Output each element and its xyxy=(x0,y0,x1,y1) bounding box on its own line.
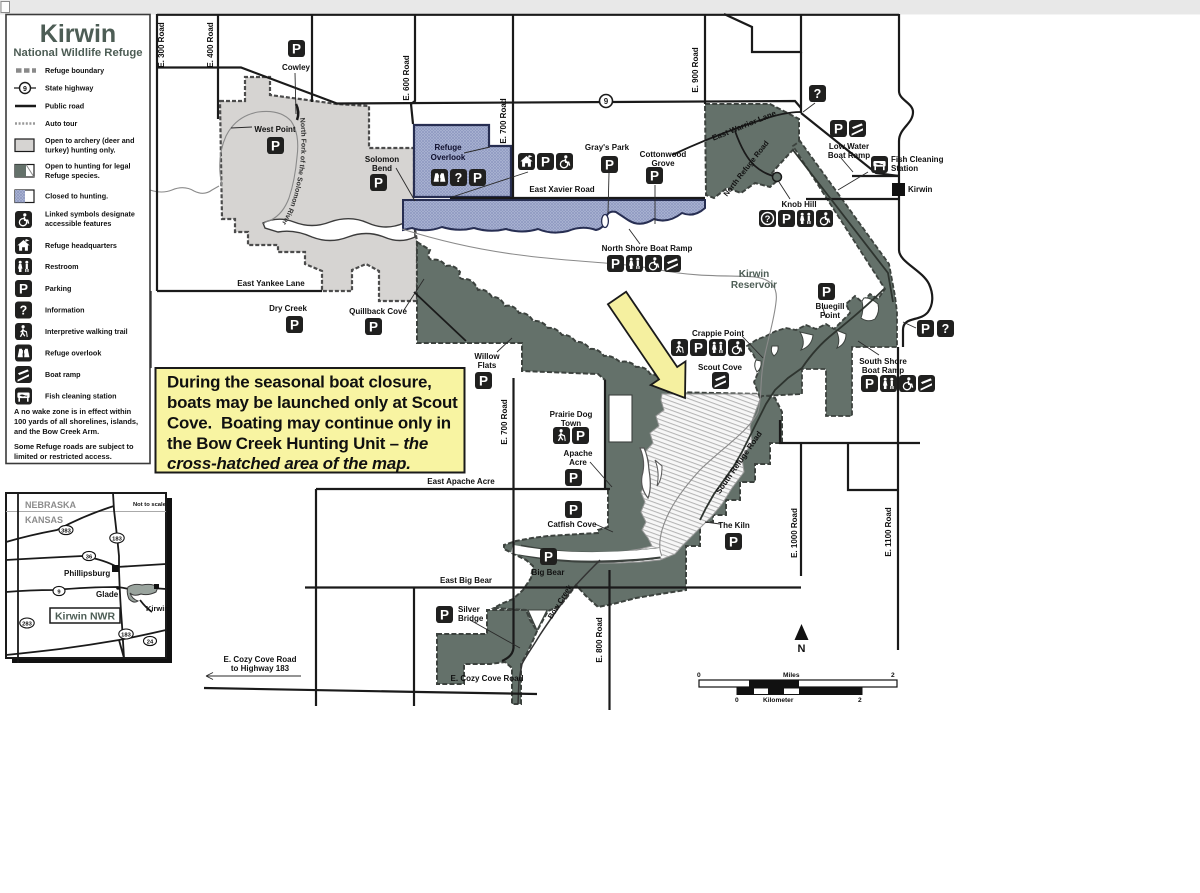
svg-text:Cowley: Cowley xyxy=(282,63,311,72)
svg-text:Some Refuge roads are subject: Some Refuge roads are subject to xyxy=(14,442,134,451)
svg-text:Miles: Miles xyxy=(783,672,800,679)
svg-text:9: 9 xyxy=(604,97,609,106)
svg-text:Public road: Public road xyxy=(45,102,84,111)
svg-text:2: 2 xyxy=(891,672,895,679)
svg-text:Apache: Apache xyxy=(564,449,593,458)
svg-text:E. 700 Road: E. 700 Road xyxy=(500,399,509,444)
svg-text:Phillipsburg: Phillipsburg xyxy=(64,569,110,578)
svg-text:KANSAS: KANSAS xyxy=(25,515,63,525)
svg-text:A no wake zone is in effect wi: A no wake zone is in effect within xyxy=(14,407,132,416)
svg-text:Willow: Willow xyxy=(474,352,500,361)
svg-text:East Yankee Lane: East Yankee Lane xyxy=(237,279,305,288)
svg-text:E. Cozy Cove Road: E. Cozy Cove Road xyxy=(224,655,297,664)
svg-text:Bend: Bend xyxy=(372,164,392,173)
svg-text:Gray's Park: Gray's Park xyxy=(585,143,630,152)
svg-text:East Apache Acre: East Apache Acre xyxy=(427,477,495,486)
svg-text:Prairie Dog: Prairie Dog xyxy=(550,410,593,419)
svg-text:Boat ramp: Boat ramp xyxy=(45,370,81,379)
svg-text:Glade: Glade xyxy=(96,590,119,599)
svg-text:boats may be launched only at: boats may be launched only at Scout xyxy=(167,393,458,412)
svg-text:24: 24 xyxy=(147,639,154,645)
svg-text:West Point: West Point xyxy=(254,125,296,134)
svg-text:E. 1000 Road: E. 1000 Road xyxy=(790,508,799,558)
svg-text:E. 900 Road: E. 900 Road xyxy=(691,47,700,92)
svg-text:Overlook: Overlook xyxy=(431,153,466,162)
svg-text:100 yards of all shorelines, i: 100 yards of all shorelines, islands, xyxy=(14,417,138,426)
svg-text:Acre: Acre xyxy=(569,458,587,467)
svg-text:Refuge: Refuge xyxy=(434,143,462,152)
svg-text:Low Water: Low Water xyxy=(829,142,869,151)
svg-text:Open to hunting for legal: Open to hunting for legal xyxy=(45,162,130,171)
svg-text:State highway: State highway xyxy=(45,84,93,93)
svg-text:283: 283 xyxy=(22,621,32,627)
svg-text:Not to scale: Not to scale xyxy=(133,502,167,508)
svg-text:Grove: Grove xyxy=(651,159,675,168)
svg-text:0: 0 xyxy=(697,672,701,679)
svg-text:Fish Cleaning: Fish Cleaning xyxy=(891,155,944,164)
svg-text:Refuge species.: Refuge species. xyxy=(45,171,100,180)
svg-text:Kirwin: Kirwin xyxy=(908,185,933,194)
svg-text:36: 36 xyxy=(86,554,93,560)
svg-text:E. 1100 Road: E. 1100 Road xyxy=(884,507,893,556)
svg-text:Refuge boundary: Refuge boundary xyxy=(45,66,104,75)
svg-text:E. 700 Road: E. 700 Road xyxy=(499,98,508,143)
svg-text:to Highway 183: to Highway 183 xyxy=(231,664,290,673)
svg-text:Quillback Cove: Quillback Cove xyxy=(349,307,407,316)
svg-text:E. 600 Road: E. 600 Road xyxy=(402,55,411,100)
svg-text:183: 183 xyxy=(112,536,122,542)
svg-text:Cove. Boating may continue on: Cove. Boating may continue only in xyxy=(167,414,451,433)
svg-text:383: 383 xyxy=(61,528,71,534)
svg-text:turkey) hunting only.: turkey) hunting only. xyxy=(45,146,116,155)
svg-text:Kirwin: Kirwin xyxy=(40,20,116,48)
svg-text:Scout Cove: Scout Cove xyxy=(698,363,743,372)
svg-text:Station: Station xyxy=(891,164,918,173)
svg-text:183: 183 xyxy=(121,632,131,638)
svg-text:Kilometer: Kilometer xyxy=(763,697,794,704)
svg-text:Catfish Cove: Catfish Cove xyxy=(548,520,597,529)
svg-text:NEBRASKA: NEBRASKA xyxy=(25,500,77,510)
svg-text:Parking: Parking xyxy=(45,284,71,293)
svg-text:Boat Ramp: Boat Ramp xyxy=(862,366,904,375)
svg-text:Cottonwood: Cottonwood xyxy=(640,150,687,159)
svg-text:Bridge: Bridge xyxy=(458,614,484,623)
svg-text:Crappie Point: Crappie Point xyxy=(692,329,744,338)
svg-text:the Bow Creek Hunting Unit – t: the Bow Creek Hunting Unit – the xyxy=(167,434,428,453)
svg-text:N: N xyxy=(798,643,806,655)
svg-text:Town: Town xyxy=(561,419,581,428)
svg-text:2: 2 xyxy=(858,697,862,704)
svg-text:and the Bow Creek Arm.: and the Bow Creek Arm. xyxy=(14,427,99,436)
svg-text:The Kiln: The Kiln xyxy=(718,521,750,530)
svg-text:Kirwin: Kirwin xyxy=(146,604,169,613)
svg-text:limited or restricted access.: limited or restricted access. xyxy=(14,452,112,461)
svg-text:Solomon: Solomon xyxy=(365,155,399,164)
svg-text:Information: Information xyxy=(45,306,85,315)
svg-text:Restroom: Restroom xyxy=(45,262,79,271)
svg-text:East Xavier Road: East Xavier Road xyxy=(529,185,594,194)
svg-text:Big Bear: Big Bear xyxy=(532,568,565,577)
svg-text:North Shore Boat Ramp: North Shore Boat Ramp xyxy=(602,244,693,253)
svg-text:South Shore: South Shore xyxy=(859,357,907,366)
svg-text:Refuge overlook: Refuge overlook xyxy=(45,349,101,358)
svg-text:National Wildlife Refuge: National Wildlife Refuge xyxy=(13,47,142,59)
svg-text:E. Cozy Cove Road: E. Cozy Cove Road xyxy=(451,674,524,683)
svg-text:Flats: Flats xyxy=(478,361,497,370)
svg-text:Closed to hunting.: Closed to hunting. xyxy=(45,192,108,201)
svg-text:E. 300 Road: E. 300 Road xyxy=(157,22,166,67)
svg-text:Interpretive walking trail: Interpretive walking trail xyxy=(45,327,128,336)
svg-text:Dry Creek: Dry Creek xyxy=(269,304,307,313)
svg-text:Open to archery (deer and: Open to archery (deer and xyxy=(45,136,134,145)
svg-text:9: 9 xyxy=(23,86,27,93)
svg-text:Bluegill: Bluegill xyxy=(816,302,845,311)
svg-text:Point: Point xyxy=(820,311,840,320)
svg-text:Refuge headquarters: Refuge headquarters xyxy=(45,241,117,250)
svg-text:0: 0 xyxy=(735,697,739,704)
svg-text:E. 400 Road: E. 400 Road xyxy=(206,22,215,67)
svg-text:Boat Ramp: Boat Ramp xyxy=(828,151,870,160)
svg-text:E. 800 Road: E. 800 Road xyxy=(595,617,604,662)
svg-text:Reservoir: Reservoir xyxy=(731,280,777,291)
svg-text:Kirwin NWR: Kirwin NWR xyxy=(55,611,115,623)
svg-text:Linked symbols designate: Linked symbols designate xyxy=(45,210,135,219)
svg-text:accessible features: accessible features xyxy=(45,219,111,228)
svg-text:Fish cleaning station: Fish cleaning station xyxy=(45,392,117,401)
svg-text:Auto tour: Auto tour xyxy=(45,119,78,128)
svg-text:cross-hatched area of the map.: cross-hatched area of the map. xyxy=(167,454,411,473)
svg-text:During the seasonal boat closu: During the seasonal boat closure, xyxy=(167,373,432,392)
svg-text:Knob Hill: Knob Hill xyxy=(781,200,816,209)
svg-text:Silver: Silver xyxy=(458,605,480,614)
svg-text:East Big Bear: East Big Bear xyxy=(440,576,492,585)
svg-text:Kirwin: Kirwin xyxy=(739,269,770,280)
